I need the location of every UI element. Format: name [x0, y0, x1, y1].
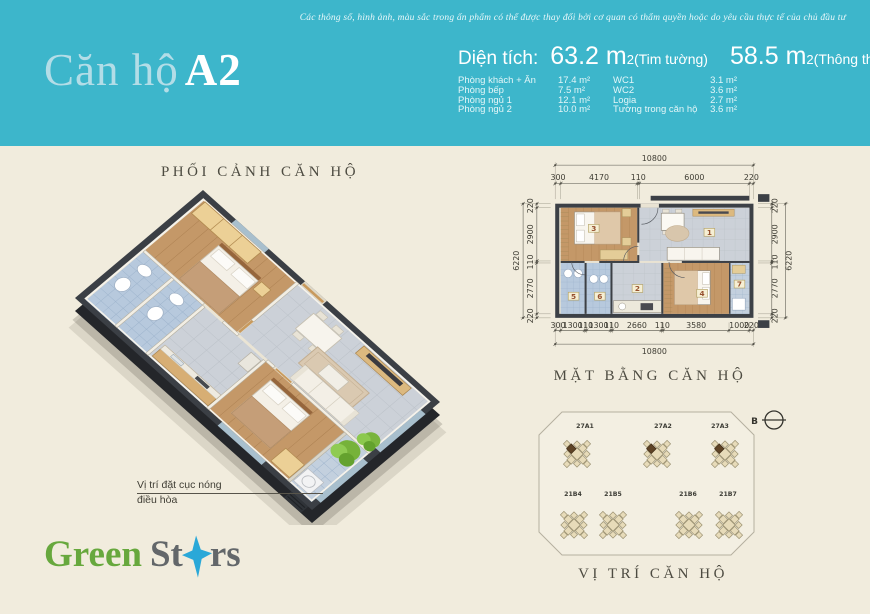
area-summary: Diện tích: 63.2 m2(Tim tường) 58.5 m2(Th…	[458, 42, 870, 71]
dimension-label: 2900	[526, 224, 535, 244]
floorplan-heading: MẶT BẰNG CĂN HỘ	[500, 368, 800, 385]
floor-plan-svg: 3004170110600022010800300130011013001102…	[513, 146, 803, 366]
room-number: 1	[707, 228, 712, 237]
room-number: 3	[591, 224, 596, 233]
compass-label: B	[751, 417, 758, 427]
header-band: Căn hộA2 Các thông số, hình ảnh, màu sắc…	[0, 0, 870, 146]
disclaimer-text: Các thông số, hình ảnh, màu sắc trong ấn…	[300, 13, 846, 23]
compass-icon: B	[751, 411, 786, 429]
room-table-left: Phòng khách + Ăn17.4 m² Phòng bếp7.5 m² …	[458, 76, 585, 115]
3d-perspective-view	[50, 180, 500, 525]
area-note-1: (Tim tường)	[634, 51, 708, 67]
dimension-label: 110	[526, 254, 535, 269]
dimension-label: 110	[604, 321, 619, 330]
ac-note: Vị trí đặt cục nóng điều hòa	[137, 479, 329, 506]
logo-green-text: Green	[44, 535, 142, 575]
dimension-label: 300	[550, 173, 565, 182]
ac-note-line1: Vị trí đặt cục nóng	[137, 479, 323, 494]
brochure-page: Căn hộA2 Các thông số, hình ảnh, màu sắc…	[0, 0, 870, 614]
room-number: 4	[699, 289, 704, 298]
dimension-label: 220	[526, 308, 535, 323]
building-label: 21B4	[564, 491, 582, 498]
dimension-label: 10800	[642, 347, 667, 356]
building-label: 27A3	[711, 423, 729, 430]
area-note-2: (Thông thủy)	[814, 51, 870, 67]
room-value: 3.6 m²	[710, 105, 737, 115]
dimension-label: 4170	[589, 173, 609, 182]
room-number: 5	[571, 292, 576, 301]
apartment-title: Căn hộA2	[44, 44, 242, 96]
perspective-heading: PHỐI CẢNH CĂN HỘ	[110, 164, 410, 181]
dimension-label: 220	[771, 198, 780, 213]
dimension-label: 3580	[686, 321, 706, 330]
area-label: Diện tích:	[458, 48, 538, 70]
dimension-label: 110	[771, 254, 780, 269]
dimension-label: 110	[631, 173, 646, 182]
dimension-label: 220	[526, 198, 535, 213]
location-svg: B 27A1 27A2 27A3 21B4 21B5 21B6 21B7	[528, 404, 800, 564]
room-number: 6	[597, 292, 602, 301]
dimension-label: 6220	[513, 251, 521, 271]
floor-plan: 3004170110600022010800300130011013001102…	[513, 146, 803, 366]
dimension-label: 110	[655, 321, 670, 330]
room-value: 10.0 m²	[558, 105, 585, 115]
building-label: 21B5	[604, 491, 622, 498]
building-label: 21B6	[679, 491, 697, 498]
logo-gray-text-2: rs	[210, 535, 241, 575]
building-label: 27A2	[654, 423, 672, 430]
ac-note-line2: điều hòa	[137, 494, 177, 506]
dimension-label: 220	[744, 321, 759, 330]
dimension-label: 2770	[526, 278, 535, 298]
location-map: B 27A1 27A2 27A3 21B4 21B5 21B6 21B7	[528, 404, 800, 564]
room-number: 2	[635, 284, 640, 293]
room-number: 7	[737, 280, 742, 289]
building-label: 21B7	[719, 491, 737, 498]
area-value-2: 58.5 m	[730, 42, 806, 71]
building-label: 27A1	[576, 423, 594, 430]
dimension-label: 220	[744, 173, 759, 182]
dimension-label: 10800	[642, 154, 667, 163]
dimension-label: 2770	[771, 278, 780, 298]
dimension-label: 220	[771, 308, 780, 323]
dimension-label: 2660	[627, 321, 647, 330]
dimension-label: 6000	[684, 173, 704, 182]
green-stars-logo: GreenSt rs	[44, 534, 241, 575]
logo-gray-text-1: St	[150, 535, 183, 575]
room-table-right: WC13.1 m² WC23.6 m² Logia2.7 m² Tường tr…	[613, 76, 737, 115]
apartment-title-code: A2	[185, 45, 242, 95]
3d-perspective-svg	[50, 180, 500, 525]
logo-star-icon	[182, 534, 212, 580]
dimension-label: 6220	[785, 251, 794, 271]
dimension-label: 2900	[771, 224, 780, 244]
apartment-title-light: Căn hộ	[44, 45, 179, 95]
room-label: Phòng ngủ 2	[458, 105, 558, 115]
location-heading: VỊ TRÍ CĂN HỘ	[503, 566, 803, 583]
area-value-1: 63.2 m	[550, 42, 626, 71]
room-label: Tường trong căn hộ	[613, 105, 710, 115]
